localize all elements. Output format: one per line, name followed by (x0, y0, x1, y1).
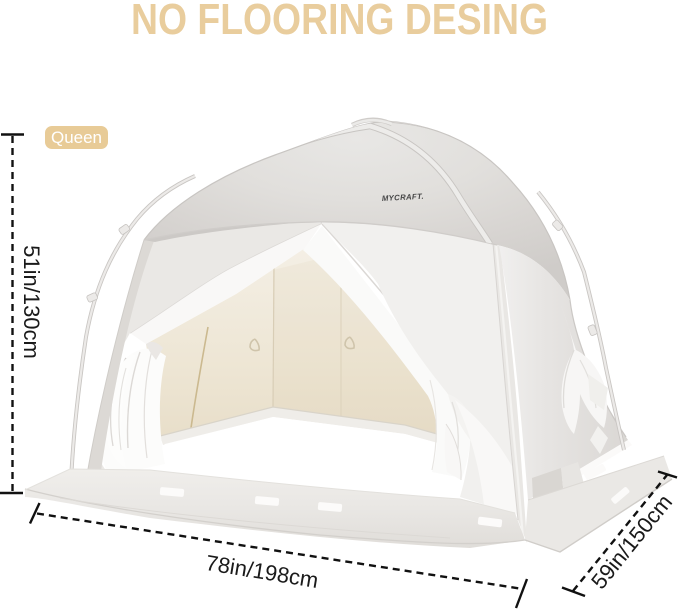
svg-text:NO FLOORING DESING: NO FLOORING DESING (131, 0, 548, 44)
